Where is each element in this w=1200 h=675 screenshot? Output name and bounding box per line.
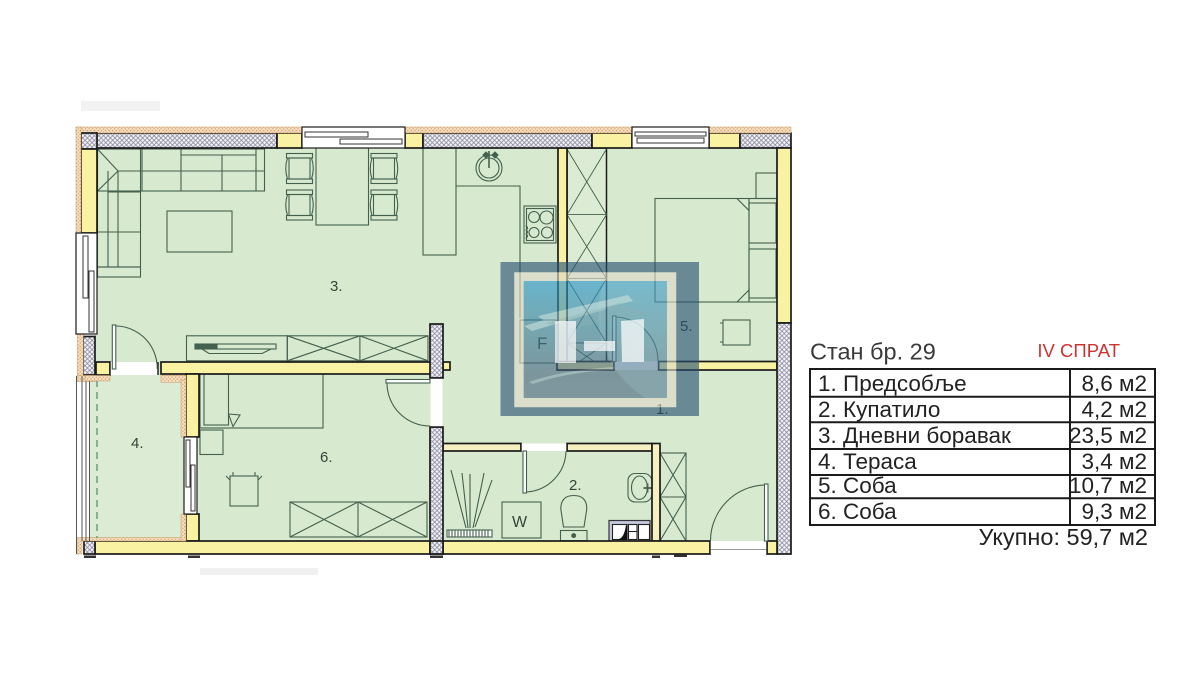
svg-text:2.: 2. <box>569 477 582 494</box>
svg-text:2. Купатило: 2. Купатило <box>818 397 940 422</box>
svg-text:IV СПРАТ: IV СПРАТ <box>1037 340 1120 361</box>
svg-text:6.: 6. <box>320 449 333 466</box>
svg-text:3.: 3. <box>330 278 343 295</box>
svg-text:4.: 4. <box>131 435 144 452</box>
svg-text:8,6 м2: 8,6 м2 <box>1081 371 1147 396</box>
svg-text:4. Тераса: 4. Тераса <box>818 449 917 474</box>
svg-text:23,5 м2: 23,5 м2 <box>1069 423 1147 448</box>
svg-text:W: W <box>512 514 528 531</box>
svg-text:3. Дневни боравак: 3. Дневни боравак <box>818 423 1011 448</box>
svg-text:1. Предсобље: 1. Предсобље <box>818 371 967 396</box>
svg-text:5. Соба: 5. Соба <box>818 473 897 498</box>
svg-text:3,4 м2: 3,4 м2 <box>1081 449 1147 474</box>
svg-text:10,7 м2: 10,7 м2 <box>1069 473 1147 498</box>
svg-text:Укупно: 59,7 м2: Укупно: 59,7 м2 <box>979 524 1149 550</box>
svg-text:9,3 м2: 9,3 м2 <box>1081 499 1147 524</box>
svg-text:6. Соба: 6. Соба <box>818 499 897 524</box>
svg-text:Стан бр. 29: Стан бр. 29 <box>810 339 936 365</box>
svg-text:4,2 м2: 4,2 м2 <box>1081 397 1147 422</box>
